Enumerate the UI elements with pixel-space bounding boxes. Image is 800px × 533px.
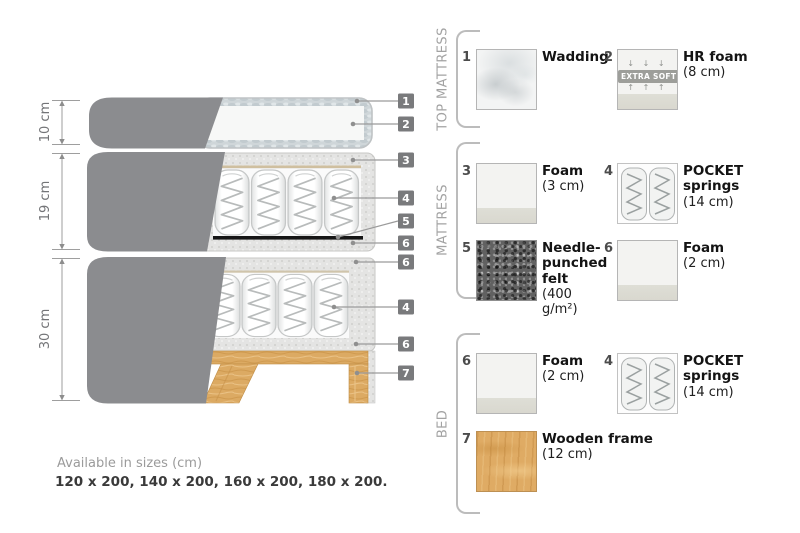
legend-number-foam3: 3 [455,165,471,178]
foam-3cm-swatch [476,163,537,224]
legend-size: (2 cm) [683,257,763,272]
bed-base-section [87,257,375,404]
pocket-springs-swatch-bed [617,353,678,414]
foam-2cm-swatch-bed [476,353,537,414]
wadding-swatch [476,49,537,110]
legend-size: (8 cm) [683,66,763,81]
arrows-up-icon: ↑ ↑ ↑ [618,84,677,92]
top-mattress-section [89,98,372,149]
legend-number-wood: 7 [455,433,471,446]
dimension-19cm [52,154,80,250]
callout-badge-6c: 6 [402,338,410,351]
available-sizes-list: 120 x 200, 140 x 200, 160 x 200, 180 x 2… [55,474,387,490]
legend-label-felt: Needle-punched felt (400 g/m²) [542,241,604,318]
legend-number-foam2: 6 [597,242,613,255]
available-sizes-note: Available in sizes (cm) [57,456,202,471]
pocket-springs-swatch [617,163,678,224]
callout-badge-2: 2 [402,118,410,131]
callout-badge-4b: 4 [402,301,410,314]
section-label-bed: BED [436,410,451,438]
legend-label-hr-foam: HR foam (8 cm) [683,50,763,81]
wooden-frame [203,351,368,403]
legend-label-springs: POCKET springs (14 cm) [683,164,745,211]
legend-name: POCKET springs [683,163,743,194]
wadding-layer [197,98,372,106]
legend-size: (12 cm) [542,448,672,463]
legend-name: POCKET springs [683,353,743,384]
section-label-mattress: MATTRESS [436,184,451,256]
callout-badge-5: 5 [402,215,410,228]
legend-name: Foam [542,353,583,369]
hr-foam-swatch: ↓ ↓ ↓ EXTRA SOFT ↑ ↑ ↑ [617,49,678,110]
mattress-fabric-cover [87,152,225,252]
legend-name: Foam [542,163,583,179]
dimension-label-10cm: 10 cm [38,102,53,143]
legend-size: (2 cm) [542,370,622,385]
legend-size: (400 g/m²) [542,288,604,318]
callout-badge-4: 4 [402,192,410,205]
legend-name: Foam [683,240,724,256]
callout-badge-6b: 6 [402,256,410,269]
needle-punched-felt-swatch [476,240,537,301]
legend-number-wadding: 1 [455,51,471,64]
legend-number-springs: 4 [597,165,613,178]
legend-name: Wooden frame [542,431,653,447]
legend-name: HR foam [683,49,748,65]
legend-number-hr-foam: 2 [597,51,613,64]
callout-badges: 1 2 3 4 5 6 6 4 6 7 [398,94,414,381]
legend-size: (3 cm) [542,180,622,195]
callout-badge-7: 7 [402,367,410,380]
legend-number-foam2b: 6 [455,355,471,368]
pocket-springs-icon [620,356,676,412]
pocket-springs-icon [620,166,676,222]
callout-badge-3: 3 [402,154,410,167]
legend-label-foam2: Foam (2 cm) [683,241,763,272]
wooden-frame-swatch [476,431,537,492]
dimension-10cm [52,101,80,145]
arrows-down-icon: ↓ ↓ ↓ [618,60,677,68]
legend-size: (14 cm) [683,196,745,211]
extra-soft-badge: EXTRA SOFT [618,70,678,83]
callout-badge-1: 1 [402,95,410,108]
top-mattress-fabric-cover [89,98,223,149]
legend-size: (14 cm) [683,386,745,401]
mattress-top-liner [213,166,361,169]
foam-2cm-swatch [617,240,678,301]
section-label-top-mattress: TOP MATTRESS [436,27,451,130]
callout-badge-6: 6 [402,237,410,250]
bed-cross-section-diagram: 10 cm 19 cm 30 cm [0,0,430,533]
mattress-section [87,152,375,252]
dimension-label-19cm: 19 cm [38,181,53,222]
dimension-30cm [52,259,80,401]
legend-label-springsb: POCKET springs (14 cm) [683,354,745,401]
legend-number-springsb: 4 [597,355,613,368]
dimension-label-30cm: 30 cm [38,309,53,350]
bed-fabric-cover [87,257,226,404]
legend-label-wood: Wooden frame (12 cm) [542,432,672,463]
legend-number-felt: 5 [455,242,471,255]
